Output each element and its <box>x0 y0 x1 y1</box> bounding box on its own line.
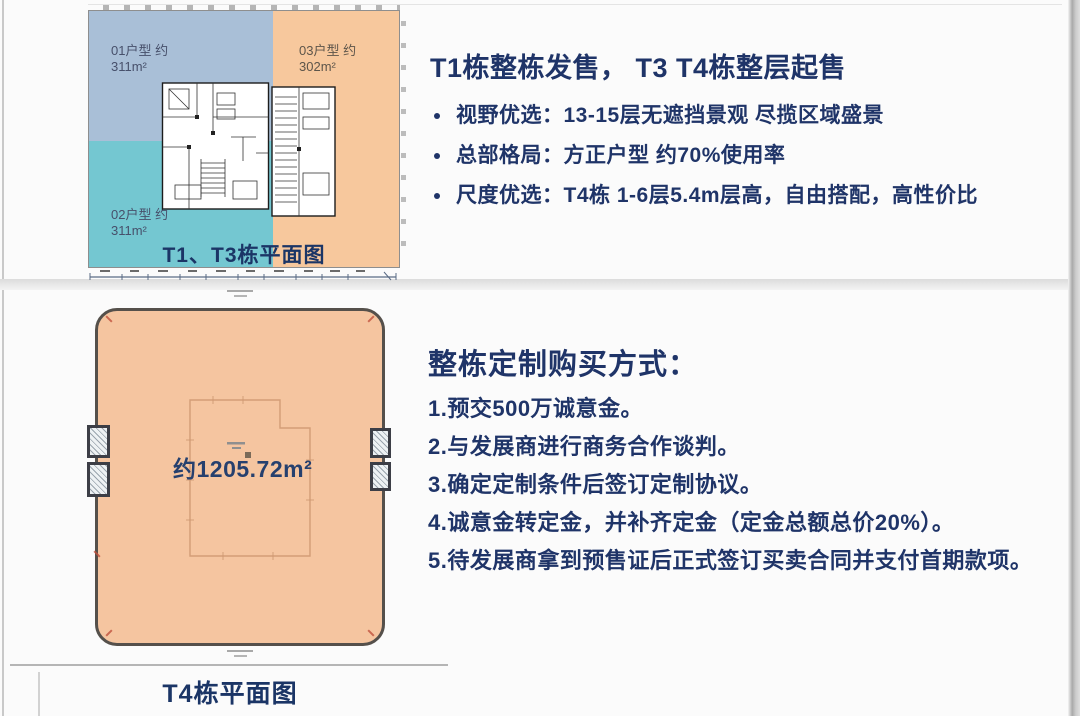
sale-bullet-row: 视野优选：13-15层无遮挡景观 尽揽区域盛景 <box>430 102 1070 130</box>
t1-t3-floorplan-drawing <box>161 77 339 229</box>
bullet-icon <box>434 153 440 159</box>
t4-dimension-text-top <box>95 290 385 297</box>
unit-02-label-line2: 311m² <box>111 223 168 239</box>
sale-info-block: T1栋整栋发售， T3 T4栋整层起售 视野优选：13-15层无遮挡景观 尽揽区… <box>430 50 1070 222</box>
sale-bullet-text: 视野优选：13-15层无遮挡景观 尽揽区域盛景 <box>456 102 884 130</box>
sale-bullet-row: 尺度优选：T4栋 1-6层5.4m层高，自由搭配，高性价比 <box>430 182 1070 210</box>
unit-03-label-line2: 302m² <box>299 59 356 75</box>
unit-01-label-line1: 01户型 约 <box>111 43 168 59</box>
purchase-step: 3.确定定制条件后签订定制协议。 <box>428 472 1073 498</box>
sale-bullet-row: 总部格局：方正户型 约70%使用率 <box>430 142 1070 170</box>
purchase-step: 1.预交500万诚意金。 <box>428 396 1073 422</box>
t4-dimension-text-bottom <box>95 650 385 657</box>
core-right-lower <box>370 462 391 491</box>
dimension-line <box>88 269 400 281</box>
unit-01-label-line2: 311m² <box>111 59 168 75</box>
t1-t3-plan-caption: T1、T3栋平面图 <box>89 239 399 269</box>
purchase-title: 整栋定制购买方式： <box>428 346 1073 384</box>
purchase-step: 2.与发展商进行商务合作谈判。 <box>428 434 1073 460</box>
dimension-ticks-right <box>401 13 406 263</box>
unit-02-label-line1: 02户型 约 <box>111 207 168 223</box>
sale-title: T1栋整栋发售， T3 T4栋整层起售 <box>430 50 1070 86</box>
purchase-info-block: 整栋定制购买方式： 1.预交500万诚意金。 2.与发展商进行商务合作谈判。 3… <box>428 346 1073 586</box>
dimension-ticks-top <box>88 5 400 10</box>
core-right-upper <box>370 428 391 458</box>
unit-01-label: 01户型 约 311m² <box>111 43 168 75</box>
unit-03-label-line1: 03户型 约 <box>299 43 356 59</box>
purchase-step: 4.诚意金转定金，并补齐定金（定金总额总价20%）。 <box>428 510 1073 536</box>
t4-area-label: 约1205.72m² <box>173 450 312 484</box>
unit-03-label: 03户型 约 302m² <box>299 43 356 75</box>
t1-t3-plan-panel: 01户型 约 311m² 02户型 约 311m² 03户型 约 302m² <box>88 10 400 268</box>
t4-plan-caption: T4栋平面图 <box>0 674 460 710</box>
sale-bullet-text: 总部格局：方正户型 约70%使用率 <box>456 142 785 170</box>
bullet-icon <box>434 193 440 199</box>
t4-caption-rule <box>10 664 448 666</box>
core-left-lower <box>87 462 110 497</box>
unit-02-label: 02户型 约 311m² <box>111 207 168 239</box>
bullet-icon <box>434 113 440 119</box>
core-left-upper <box>87 425 110 458</box>
t4-plan-panel: 约1205.72m² <box>95 308 385 646</box>
page-left-edge <box>2 0 4 716</box>
sale-bullet-text: 尺度优选：T4栋 1-6层5.4m层高，自由搭配，高性价比 <box>456 182 978 210</box>
purchase-step: 5.待发展商拿到预售证后正式签订买卖合同并支付首期款项。 <box>428 548 1073 574</box>
